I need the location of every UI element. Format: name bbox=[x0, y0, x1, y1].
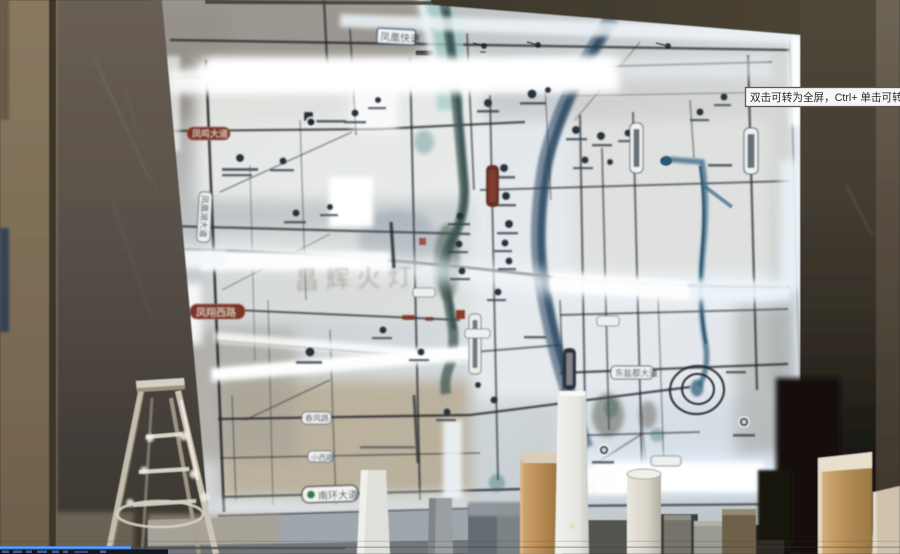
svg-text:凤鸣大道: 凤鸣大道 bbox=[192, 128, 228, 139]
svg-text:小西路: 小西路 bbox=[311, 452, 334, 462]
svg-text:昌辉火灯: 昌辉火灯 bbox=[294, 264, 419, 295]
svg-text:春风路: 春风路 bbox=[305, 413, 329, 423]
svg-text:东盐都大道: 东盐都大道 bbox=[615, 368, 658, 378]
svg-text:双击可转为全屏，Ctrl+ 单击可转为: 双击可转为全屏，Ctrl+ 单击可转为 bbox=[750, 91, 900, 104]
svg-text:凤翔西路: 凤翔西路 bbox=[196, 306, 236, 319]
svg-text:凤凰快速: 凤凰快速 bbox=[380, 31, 421, 45]
